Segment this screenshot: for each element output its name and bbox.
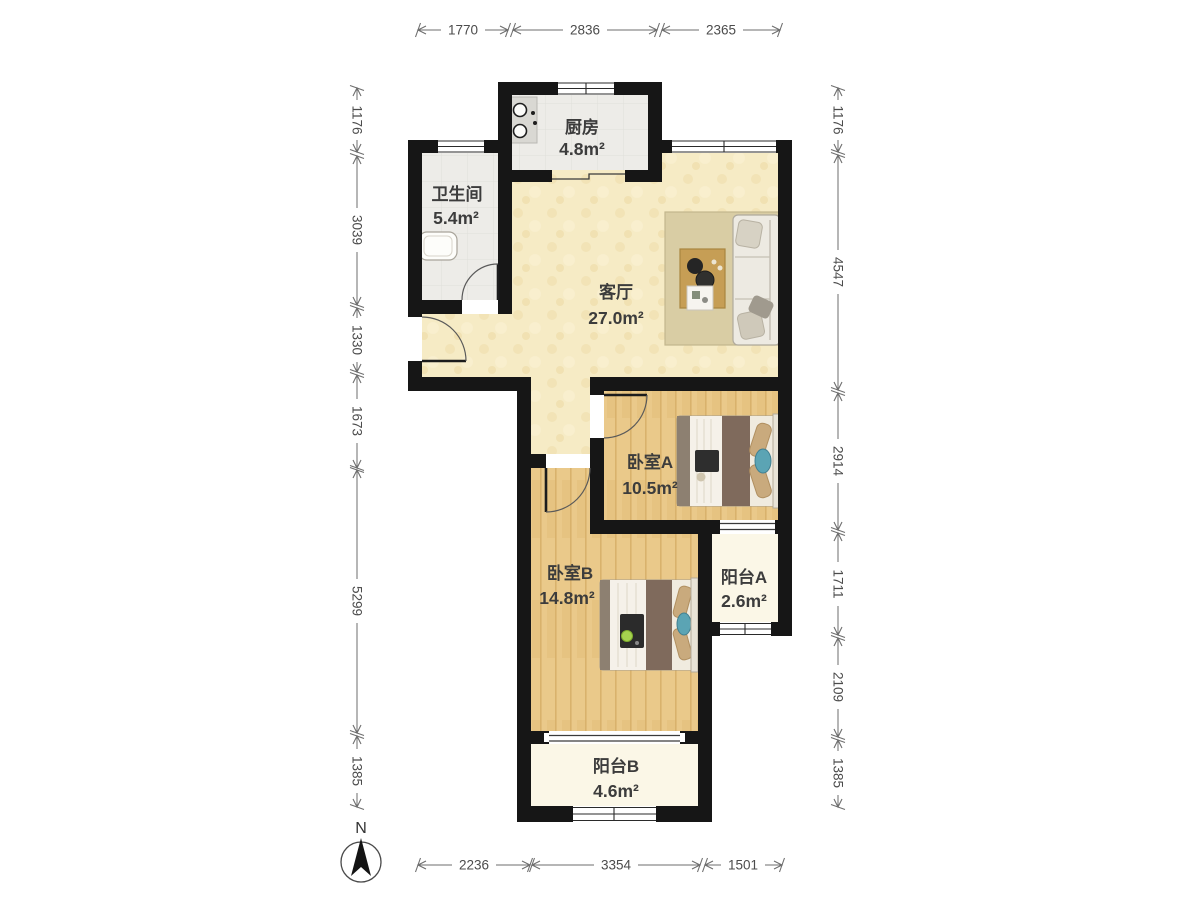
room-floor-entry xyxy=(422,314,531,377)
dimensions-top: 1770 2836 2365 xyxy=(418,23,780,38)
room-label-living-area: 27.0m² xyxy=(588,308,644,328)
dim-label: 2365 xyxy=(706,23,736,38)
dim-label: 1385 xyxy=(350,756,365,786)
dimensions-left: 1176 3039 1330 1673 5299 1385 xyxy=(350,88,365,807)
window-living-top xyxy=(672,140,776,153)
dim-label: 1176 xyxy=(831,105,846,134)
dim-label: 2236 xyxy=(459,858,489,873)
window-kitchen-top xyxy=(558,82,614,95)
coffee-table xyxy=(680,249,725,310)
dim-label: 5299 xyxy=(350,586,365,616)
dim-label: 2109 xyxy=(831,672,846,702)
blanket xyxy=(722,416,750,506)
room-floor-corridor xyxy=(531,377,590,454)
dim-label: 3039 xyxy=(350,215,365,245)
round-pillow xyxy=(755,449,771,473)
room-label-bedroom-a-name: 卧室A xyxy=(627,452,673,472)
dim-label: 1385 xyxy=(831,758,846,788)
room-label-kitchen-area: 4.8m² xyxy=(559,139,605,159)
dim-label: 1501 xyxy=(728,858,758,873)
floorplan-svg: 厨房 4.8m² 卫生间 5.4m² 客厅 27.0m² 卧室A 10.5m² … xyxy=(0,0,1200,900)
window-bathroom-top xyxy=(438,140,484,153)
sliding-door-bedroom-a-balcony-a xyxy=(720,524,775,530)
room-label-bedroom-b-name: 卧室B xyxy=(547,563,593,583)
dim-label: 2914 xyxy=(831,446,846,477)
room-label-balcony-b-area: 4.6m² xyxy=(593,781,639,801)
room-label-kitchen-name: 厨房 xyxy=(565,117,599,137)
bed-b xyxy=(600,578,698,672)
tv-icon xyxy=(620,614,644,648)
room-label-balcony-a-area: 2.6m² xyxy=(721,591,767,611)
sliding-door-bedroom-b-balcony-b xyxy=(549,736,680,742)
dim-label: 1176 xyxy=(350,105,365,134)
blanket xyxy=(646,580,672,670)
window-balcony-b-bottom xyxy=(573,806,656,822)
dim-label: 1673 xyxy=(350,406,365,436)
sofa xyxy=(733,215,780,345)
floorplan-page: 厨房 4.8m² 卫生间 5.4m² 客厅 27.0m² 卧室A 10.5m² … xyxy=(0,0,1200,900)
dim-label: 4547 xyxy=(831,257,846,287)
window-balcony-a-bottom xyxy=(720,622,771,636)
dim-label: 1330 xyxy=(350,325,365,355)
bed-a xyxy=(677,414,780,508)
room-label-bathroom-name: 卫生间 xyxy=(432,184,483,204)
room-label-living-name: 客厅 xyxy=(598,282,633,302)
sofa-pillow xyxy=(735,219,763,249)
dim-label: 3354 xyxy=(601,858,632,873)
compass: N xyxy=(341,820,381,882)
dim-label: 2836 xyxy=(570,23,600,38)
dimensions-right: 1176 4547 2914 1711 2109 1385 xyxy=(831,88,846,807)
headboard xyxy=(691,578,698,672)
dim-label: 1711 xyxy=(831,569,846,598)
room-label-bedroom-a-area: 10.5m² xyxy=(622,478,678,498)
room-label-bathroom-area: 5.4m² xyxy=(433,208,479,228)
room-label-bedroom-b-area: 14.8m² xyxy=(539,588,595,608)
dim-label: 1770 xyxy=(448,23,478,38)
sink-icon xyxy=(419,232,457,260)
compass-north-label: N xyxy=(355,820,367,837)
room-label-balcony-a-name: 阳台A xyxy=(721,567,767,587)
stove-icon xyxy=(510,97,537,143)
laptop-icon xyxy=(695,450,719,472)
room-label-balcony-b-name: 阳台B xyxy=(593,756,639,776)
dimensions-bottom: 2236 3354 1501 xyxy=(418,858,782,873)
round-pillow xyxy=(677,613,691,635)
